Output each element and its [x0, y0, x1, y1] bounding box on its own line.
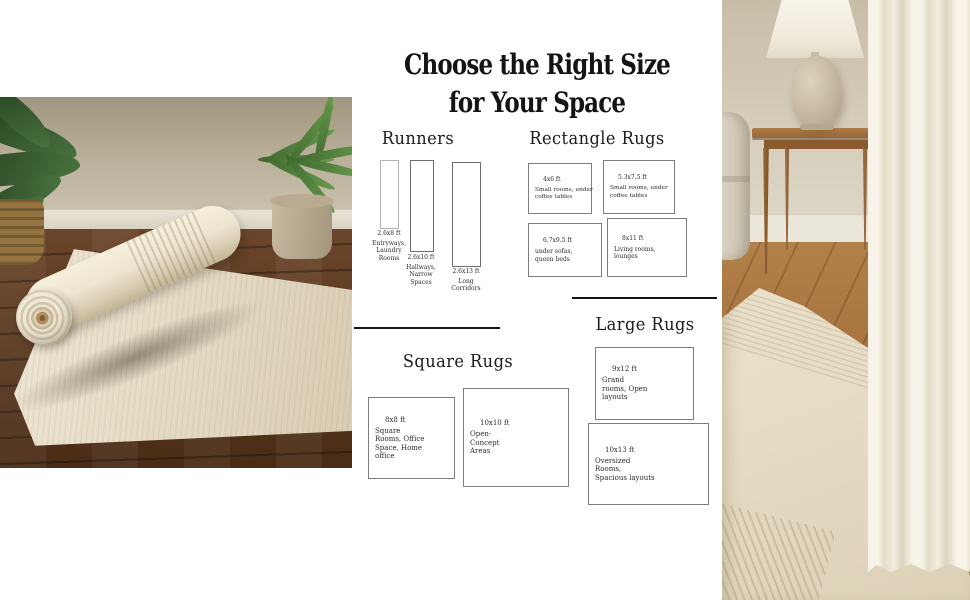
- size-label: 2.6x8 ft: [371, 230, 407, 238]
- large-rugs-heading: Large Rugs: [555, 314, 735, 335]
- lamp-base: [792, 56, 842, 126]
- size-box-10x10: 10x10 ft Open-Concept Areas: [463, 388, 569, 487]
- use-label: Square Rooms, Office Space, Home office: [369, 427, 425, 461]
- size-label: 4x6 ft: [529, 176, 591, 184]
- fern-pot: [272, 201, 332, 259]
- armchair: [722, 112, 750, 260]
- size-label: 8x11 ft: [608, 235, 686, 243]
- rug-roll-spiral-end: [16, 289, 72, 345]
- lamp-foot: [800, 124, 834, 130]
- size-label: 2.6x13 ft: [448, 268, 484, 276]
- size-box-4x6: 4x6 ft Small rooms, under coffee tables: [528, 163, 592, 214]
- lamp-shade: [766, 0, 864, 58]
- rectangle-rugs-heading: Rectangle Rugs: [507, 128, 687, 149]
- runner-box-2-6x10: [410, 160, 434, 252]
- use-label: Entryways, Laundry Rooms: [371, 240, 407, 263]
- size-box-10x13: 10x13 ft Oversized Rooms, Spacious layou…: [588, 423, 709, 505]
- size-label: 2.6x10 ft: [403, 254, 439, 262]
- runner-box-2-6x13: [452, 162, 481, 267]
- use-label: Oversized Rooms, Spacious layouts: [589, 457, 655, 483]
- size-label: 10x10 ft: [464, 419, 568, 427]
- size-box-9x12: 9x12 ft Grand rooms, Open layouts: [595, 347, 694, 420]
- size-box-8x11: 8x11 ft Living rooms, lounges: [607, 218, 687, 277]
- size-box-6-7x9-5: 6.7x9.5 ft under sofas, queen beds: [528, 223, 602, 277]
- runner-box-2-6x8: [380, 160, 399, 229]
- room-scene-photo: [722, 0, 970, 600]
- size-guide-panel: Choose the Right Size for Your Space Run…: [352, 0, 722, 600]
- square-rugs-heading: Square Rugs: [368, 351, 548, 372]
- use-label: Small rooms, under coffee tables: [529, 187, 594, 202]
- use-label: Long Corridors: [448, 278, 484, 293]
- rug-size-guide-page: { "infographic": { "title_line1": "Choos…: [0, 0, 970, 600]
- size-label: 10x13 ft: [589, 446, 708, 454]
- size-box-8x8: 8x8 ft Square Rooms, Office Space, Home …: [368, 397, 455, 479]
- sheer-curtain: [868, 0, 970, 572]
- section-divider: [354, 327, 500, 329]
- runner-label: 2.6x10 ft Hallways, Narrow Spaces: [403, 254, 439, 286]
- rolled-rug-photo: [0, 97, 352, 468]
- section-divider: [572, 297, 717, 299]
- size-label: 5.3x7.5 ft: [604, 174, 674, 182]
- rug-hatch-texture: [722, 503, 836, 600]
- use-label: Living rooms, lounges: [608, 246, 660, 261]
- size-label: 9x12 ft: [596, 365, 693, 373]
- use-label: Grand rooms, Open layouts: [596, 376, 648, 402]
- use-label: Open-Concept Areas: [464, 430, 516, 456]
- runner-label: 2.6x8 ft Entryways, Laundry Rooms: [371, 230, 407, 262]
- title-line-2: for Your Space: [385, 84, 688, 122]
- use-label: Small rooms, under coffee tables: [604, 185, 669, 200]
- size-label: 8x8 ft: [369, 416, 454, 424]
- use-label: Hallways, Narrow Spaces: [403, 264, 439, 287]
- size-label: 6.7x9.5 ft: [529, 237, 601, 245]
- page-title: Choose the Right Size for Your Space: [385, 46, 688, 122]
- runners-heading: Runners: [328, 128, 508, 149]
- runner-label: 2.6x13 ft Long Corridors: [448, 268, 484, 293]
- use-label: under sofas, queen beds: [529, 248, 579, 263]
- title-line-1: Choose the Right Size: [385, 46, 688, 84]
- size-box-5-3x7-5: 5.3x7.5 ft Small rooms, under coffee tab…: [603, 160, 675, 214]
- woven-basket-planter: [0, 199, 44, 265]
